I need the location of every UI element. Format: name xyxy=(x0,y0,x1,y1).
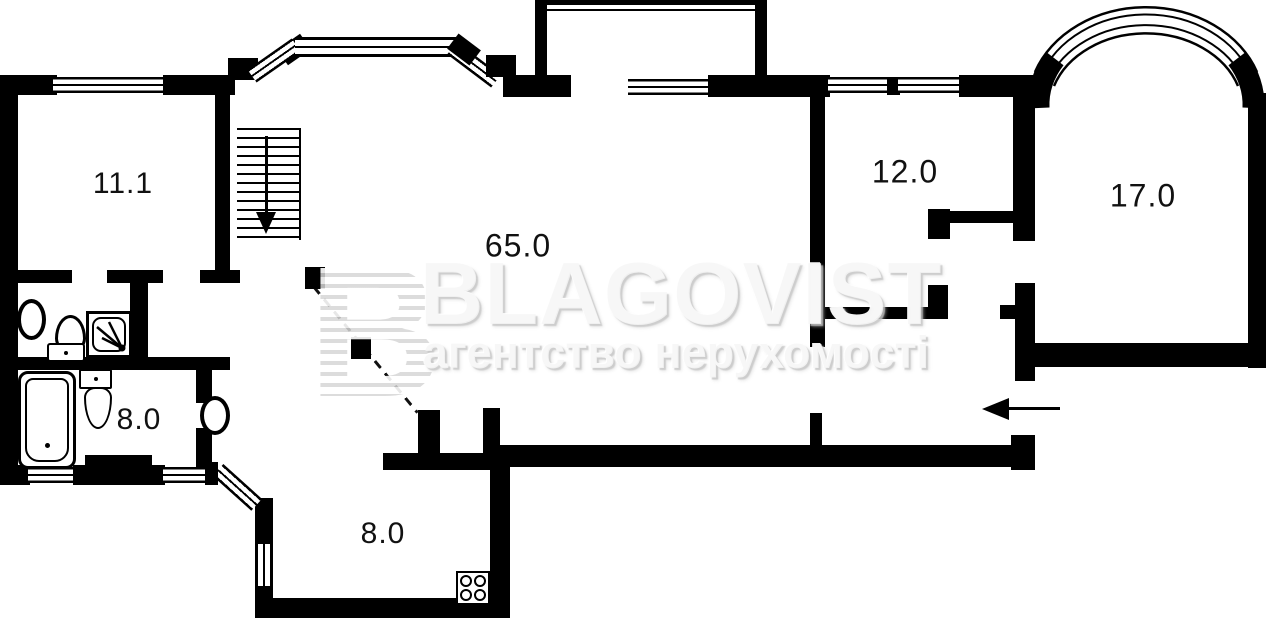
balcony-side-right xyxy=(755,0,767,77)
wall-12-bottom-thin xyxy=(948,211,1013,223)
window xyxy=(898,77,961,93)
bathtub-drain xyxy=(45,443,50,448)
wall-kitchen-left-b xyxy=(255,586,273,602)
window xyxy=(28,467,75,483)
room-label-8-kitchen: 8.0 xyxy=(361,517,406,551)
window xyxy=(628,79,710,95)
wall-11-right xyxy=(215,93,230,273)
wall-wc-right xyxy=(130,283,148,359)
wall-65-12 xyxy=(810,93,825,347)
door-oval xyxy=(200,396,230,435)
wall-bath-mid xyxy=(0,357,230,370)
wall-bottom-long xyxy=(490,445,1013,467)
wall-top xyxy=(503,75,571,97)
balcony-side-left xyxy=(535,0,547,77)
stairs-down-arrowhead-icon xyxy=(256,212,276,234)
wall-11-bottom-b xyxy=(107,270,163,283)
wall-kitchen-right xyxy=(490,453,510,618)
wall-17-bottom xyxy=(1035,343,1255,367)
room-label-12: 12.0 xyxy=(872,154,938,191)
window xyxy=(828,77,889,93)
stove-icon xyxy=(456,571,490,605)
wall-top-left xyxy=(0,75,57,95)
toilet-cistern xyxy=(79,369,112,389)
wall-65-stub xyxy=(810,413,822,447)
wall-12-bottom-end xyxy=(928,209,950,239)
balcony-inner-line xyxy=(535,9,767,11)
toilet-bowl-icon xyxy=(84,387,112,429)
window xyxy=(255,544,273,588)
wall-bath-bottom xyxy=(73,465,165,485)
window xyxy=(163,467,207,483)
entrance-arrowhead-icon xyxy=(982,398,1009,420)
wall-left-exterior xyxy=(0,75,18,485)
wall-bottom-end xyxy=(1011,435,1035,470)
room-label-11: 11.1 xyxy=(93,167,153,201)
room-label-65: 65.0 xyxy=(485,228,551,265)
stairs-down-arrow xyxy=(265,136,268,216)
bay-window-center xyxy=(295,37,460,57)
window-diagonal xyxy=(213,464,262,511)
room-label-8-bath: 8.0 xyxy=(117,403,162,437)
bathtub-icon xyxy=(18,371,76,469)
wall-kitchen-jamb1 xyxy=(418,410,440,455)
wall-right-exterior xyxy=(1248,93,1266,368)
pedestal-sink-base xyxy=(47,343,85,362)
watermark-logo: B xyxy=(308,240,442,426)
wall-kitchen-jamb2 xyxy=(483,408,500,455)
wall-11-bottom-a xyxy=(17,270,72,283)
wall-12-17-upper xyxy=(1013,75,1035,241)
balcony-front-wall xyxy=(535,0,767,5)
shower-cabin-icon xyxy=(86,311,132,358)
wall-bath-bump xyxy=(85,455,152,467)
window xyxy=(53,77,165,93)
wall-hall-jamb xyxy=(1000,305,1015,319)
column-post xyxy=(305,267,325,289)
wall-hall-stub xyxy=(928,285,948,319)
bathtub-inner xyxy=(25,378,69,462)
entrance-arrow xyxy=(1008,407,1060,410)
wall-12-17-lower xyxy=(1015,283,1035,381)
room-label-17: 17.0 xyxy=(1110,178,1176,215)
wall-top xyxy=(163,75,235,95)
watermark-tagline: агентство нерухомості xyxy=(423,330,929,375)
wall-kitchen-left-a xyxy=(255,498,273,546)
wall-top-step2 xyxy=(486,55,516,77)
door-oval xyxy=(17,299,46,340)
floor-plan: 11.1 65.0 12.0 17.0 8.0 8.0 B BLAGOVIST … xyxy=(0,0,1280,626)
arched-bay-window xyxy=(1008,0,1280,126)
column-post xyxy=(351,337,371,359)
